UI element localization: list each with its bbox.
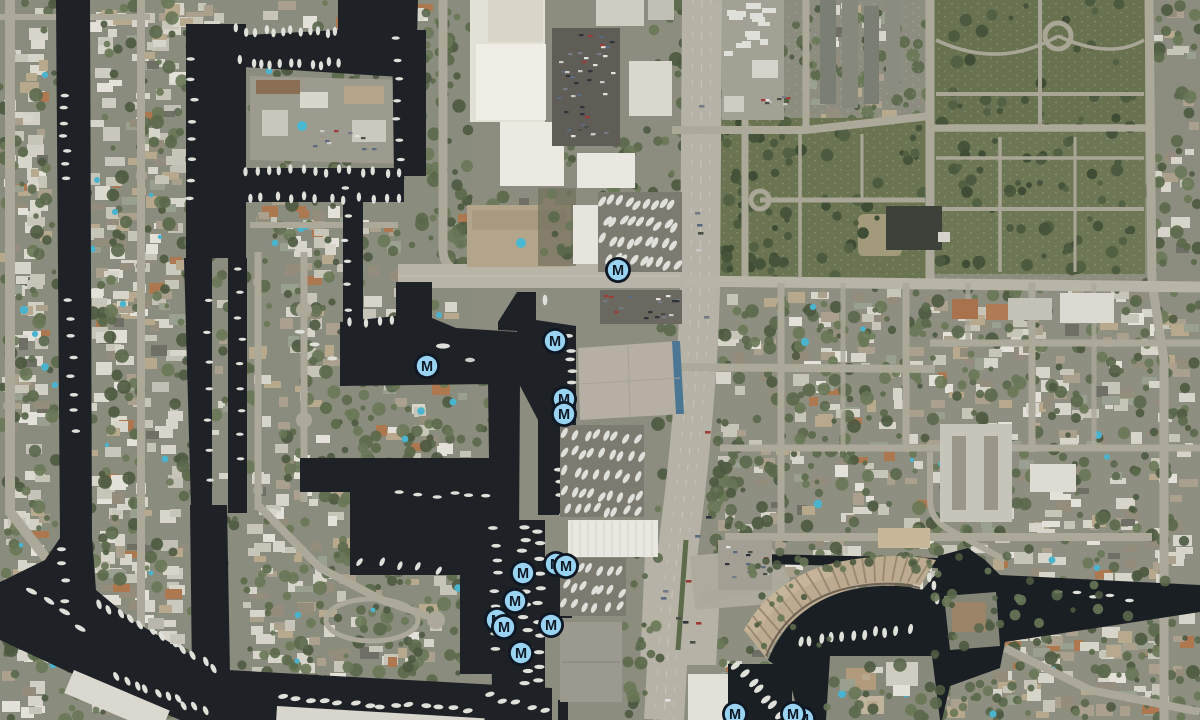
svg-text:M: M	[517, 566, 529, 582]
svg-text:M: M	[560, 559, 572, 575]
svg-text:M: M	[787, 707, 799, 720]
svg-text:M: M	[558, 407, 570, 423]
svg-text:M: M	[545, 618, 557, 634]
svg-text:M: M	[509, 594, 521, 610]
svg-text:M: M	[421, 359, 433, 375]
svg-text:M: M	[515, 646, 527, 662]
svg-text:M: M	[549, 334, 561, 350]
svg-text:M: M	[498, 620, 510, 636]
svg-text:M: M	[729, 707, 741, 720]
svg-text:M: M	[612, 263, 624, 279]
